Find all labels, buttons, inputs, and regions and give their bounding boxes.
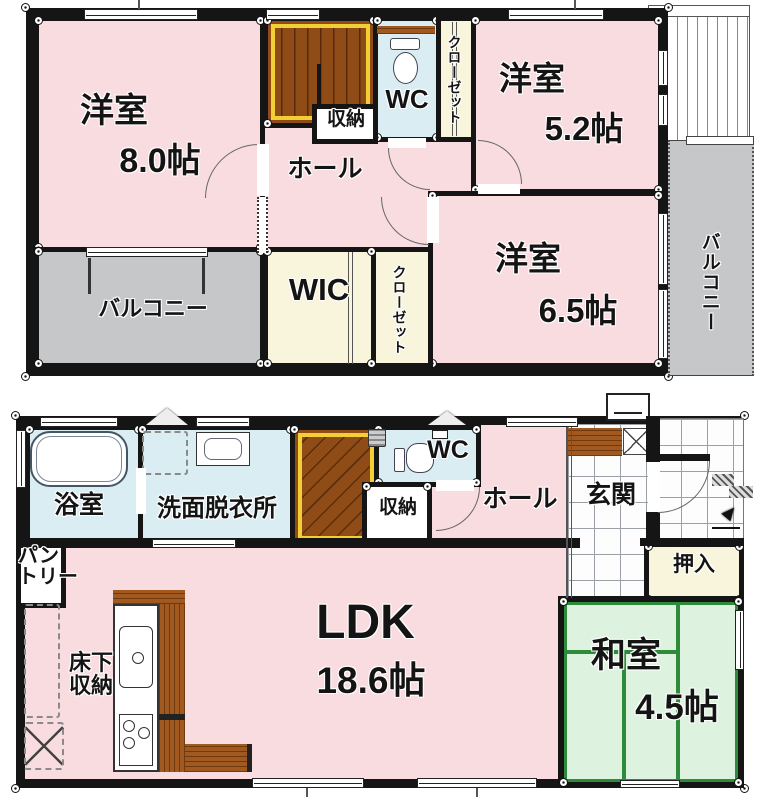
railing-post — [88, 258, 91, 294]
vent-box — [368, 429, 386, 447]
balcony-sliding-door — [86, 247, 208, 257]
wall-joint-marker — [11, 411, 20, 420]
wall-joint-marker — [21, 3, 30, 12]
room-label: WC — [376, 86, 438, 113]
vent-triangle — [428, 411, 466, 425]
room-label: 収納 — [318, 110, 374, 130]
room-label: 洋室 — [58, 94, 170, 129]
bathtub-inner — [36, 436, 122, 482]
window-tick — [306, 788, 308, 797]
wall-joint-marker — [367, 359, 376, 368]
window — [40, 417, 118, 427]
burner — [138, 727, 150, 739]
room-size: 18.6帖 — [278, 662, 464, 700]
wall-joint-marker — [423, 482, 432, 491]
sliding-window — [252, 778, 364, 788]
kitchen-divider — [159, 714, 185, 720]
vent-triangle — [146, 408, 188, 425]
room-label: 洋室 — [480, 62, 584, 96]
genkan-wall — [646, 512, 660, 544]
wall-joint-marker — [290, 425, 299, 434]
open-wall-dotted — [257, 197, 268, 253]
door-opening — [478, 184, 520, 194]
room-label: ホール — [278, 156, 372, 182]
room-label: 浴室 — [32, 492, 126, 518]
shoe-cabinet — [568, 428, 622, 456]
room-size: 6.5帖 — [518, 294, 638, 328]
floor-plan: バルコニー 洋室 8.0帖 洋室 5.2帖 洋室 6.5帖 WC クローゼット … — [0, 0, 775, 800]
toilet-tank — [390, 38, 420, 50]
exterior-unit-box — [606, 393, 650, 421]
wall-joint-marker — [11, 784, 20, 793]
wc-shelf — [377, 26, 435, 34]
room-yoshitsu-8 — [34, 16, 265, 252]
agarikamachi-edge — [571, 426, 572, 598]
kitchen-counter-cap — [113, 590, 185, 604]
agarikamachi-edge — [566, 426, 568, 598]
room-wic — [263, 247, 376, 368]
wall-joint-marker — [559, 597, 568, 606]
window — [84, 9, 198, 20]
wall-joint-marker — [367, 247, 376, 256]
vanity-basin — [204, 438, 242, 460]
entry-arrow-line — [712, 527, 740, 529]
door-opening — [388, 138, 426, 148]
room-label: 洗面脱衣所 — [150, 497, 284, 522]
entry-door-leaf — [658, 454, 710, 461]
underfloor-storage-outline — [24, 604, 60, 718]
kitchen-counter-return — [185, 744, 247, 772]
door-opening — [257, 144, 269, 196]
balcony-right-rail — [686, 136, 754, 145]
balcony-door — [658, 50, 668, 86]
wic-rod — [348, 252, 349, 364]
window — [196, 417, 250, 427]
room-label: ホール — [478, 486, 562, 512]
window — [16, 430, 26, 488]
underfloor-storage-hatch — [24, 722, 64, 770]
room-label: 洋室 — [476, 242, 580, 276]
porch-step-hatch — [712, 474, 734, 486]
room-label: 収納 — [368, 498, 428, 518]
exterior-unit-line — [614, 412, 642, 414]
room-size: 4.5帖 — [610, 690, 744, 726]
wall-joint-marker — [263, 119, 272, 128]
washer-space — [142, 431, 188, 475]
wall-joint-marker — [654, 359, 663, 368]
wall-joint-marker — [472, 425, 481, 434]
room-label: クローゼット — [447, 24, 462, 136]
window — [735, 610, 744, 670]
room-label: LDK — [288, 598, 443, 648]
window — [508, 9, 604, 20]
wall-joint-marker — [34, 247, 43, 256]
room-label: パン トリー — [18, 546, 82, 588]
wall-joint-marker — [734, 597, 743, 606]
toilet-bowl — [393, 52, 418, 84]
door-opening — [436, 480, 474, 491]
burner — [123, 720, 135, 732]
porch-step-hatch — [729, 486, 753, 498]
kitchen-counter — [159, 720, 185, 772]
kitchen-counter — [159, 604, 185, 714]
wall-joint-marker — [654, 16, 663, 25]
room-label: WC — [418, 437, 478, 463]
wall-joint-marker — [362, 482, 371, 491]
room-label: WIC — [268, 274, 370, 306]
roof-hatch-area — [656, 5, 750, 143]
room-yoshitsu-65 — [428, 191, 663, 368]
wall-joint-marker — [734, 778, 743, 787]
window-tick — [476, 788, 478, 797]
room-label: クローゼット — [392, 254, 407, 366]
bath-door-opening — [136, 468, 146, 514]
wall-joint-marker — [559, 778, 568, 787]
wall-joint-marker — [654, 191, 663, 200]
wall-joint-marker — [25, 425, 34, 434]
wall-joint-marker — [373, 16, 382, 25]
faucet — [132, 652, 144, 664]
room-label: 床下 収納 — [56, 652, 126, 698]
sliding-window — [417, 778, 537, 788]
balcony-door — [658, 213, 668, 285]
wall-joint-marker — [34, 16, 43, 25]
wall-segment — [16, 538, 580, 548]
toilet-tank — [394, 448, 405, 472]
door-opening — [427, 197, 439, 243]
burner — [123, 737, 135, 749]
wic-rod — [352, 252, 353, 364]
room-label: 玄関 — [578, 482, 644, 508]
wall-joint-marker — [263, 359, 272, 368]
railing-post — [202, 258, 205, 294]
window — [506, 417, 578, 427]
room-label: 和室 — [578, 638, 674, 674]
balcony-door — [658, 289, 668, 359]
room-label: 押入 — [662, 554, 726, 576]
wall-joint-marker — [34, 359, 43, 368]
wall-joint-marker — [471, 16, 480, 25]
window — [266, 9, 320, 20]
wall-joint-marker — [21, 372, 30, 381]
room-label: バルコニー — [88, 298, 218, 321]
wall-joint-marker — [664, 3, 673, 12]
balcony-door — [658, 94, 668, 126]
window — [620, 780, 680, 788]
kitchen-counter-end — [247, 744, 252, 772]
room-size: 8.0帖 — [98, 144, 222, 179]
balcony-right-label: バルコニー — [699, 192, 719, 372]
room-size: 5.2帖 — [524, 112, 644, 146]
sliding-door — [152, 539, 236, 548]
